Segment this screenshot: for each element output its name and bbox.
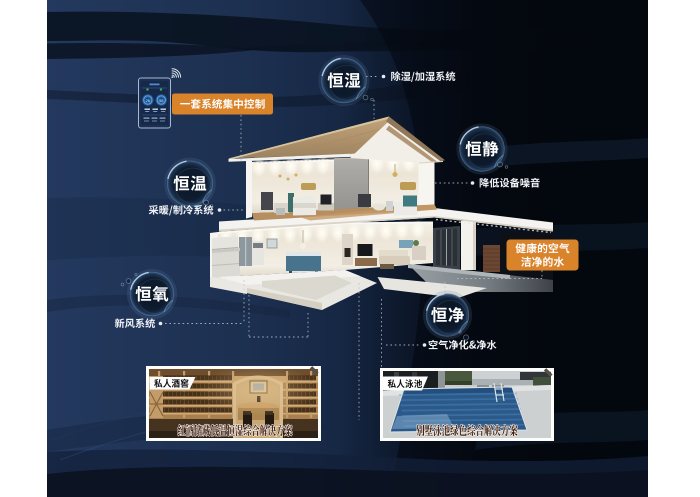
svg-text:26: 26 xyxy=(146,98,151,103)
svg-text:55: 55 xyxy=(159,98,164,103)
